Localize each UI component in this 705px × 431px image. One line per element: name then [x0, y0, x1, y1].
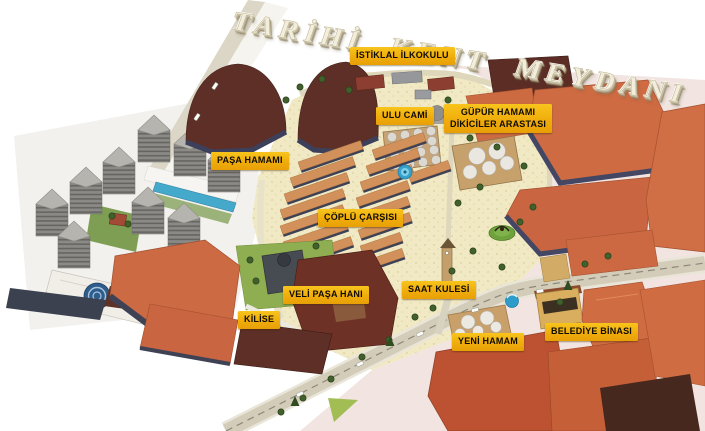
- label-gupur-hamami: GÜPÜR HAMAMI DİKİCİLER ARASTASI: [444, 104, 552, 133]
- label-istiklal-ilkokulu: İSTİKLAL İLKOKULU: [350, 47, 455, 65]
- label-gupur-hamami-line1: GÜPÜR HAMAMI: [450, 107, 546, 119]
- blue-dome-fountain: [506, 295, 519, 308]
- label-saat-kulesi: SAAT KULESİ: [402, 281, 476, 299]
- label-coplu-carsisi: ÇÖPLÜ ÇARŞISI: [318, 209, 403, 227]
- fountain: [398, 165, 412, 179]
- historic-city-square-map: TARİHİ KENT MEYDANI İSTİKLAL İLKOKULU UL…: [0, 0, 705, 431]
- label-yeni-hamam: YENİ HAMAM: [452, 333, 524, 351]
- gupur-hamami-building: [452, 136, 522, 190]
- label-ulu-cami: ULU CAMİ: [376, 107, 434, 125]
- statue-mound: [489, 226, 515, 241]
- label-kilise: KİLİSE: [238, 311, 280, 329]
- label-gupur-hamami-line2: DİKİCİLER ARASTASI: [450, 119, 546, 131]
- label-belediye-binasi: BELEDİYE BİNASI: [545, 323, 638, 341]
- label-veli-pasa-hani: VELİ PAŞA HANI: [283, 286, 369, 304]
- label-pasa-hamami: PAŞA HAMAMI: [211, 152, 289, 170]
